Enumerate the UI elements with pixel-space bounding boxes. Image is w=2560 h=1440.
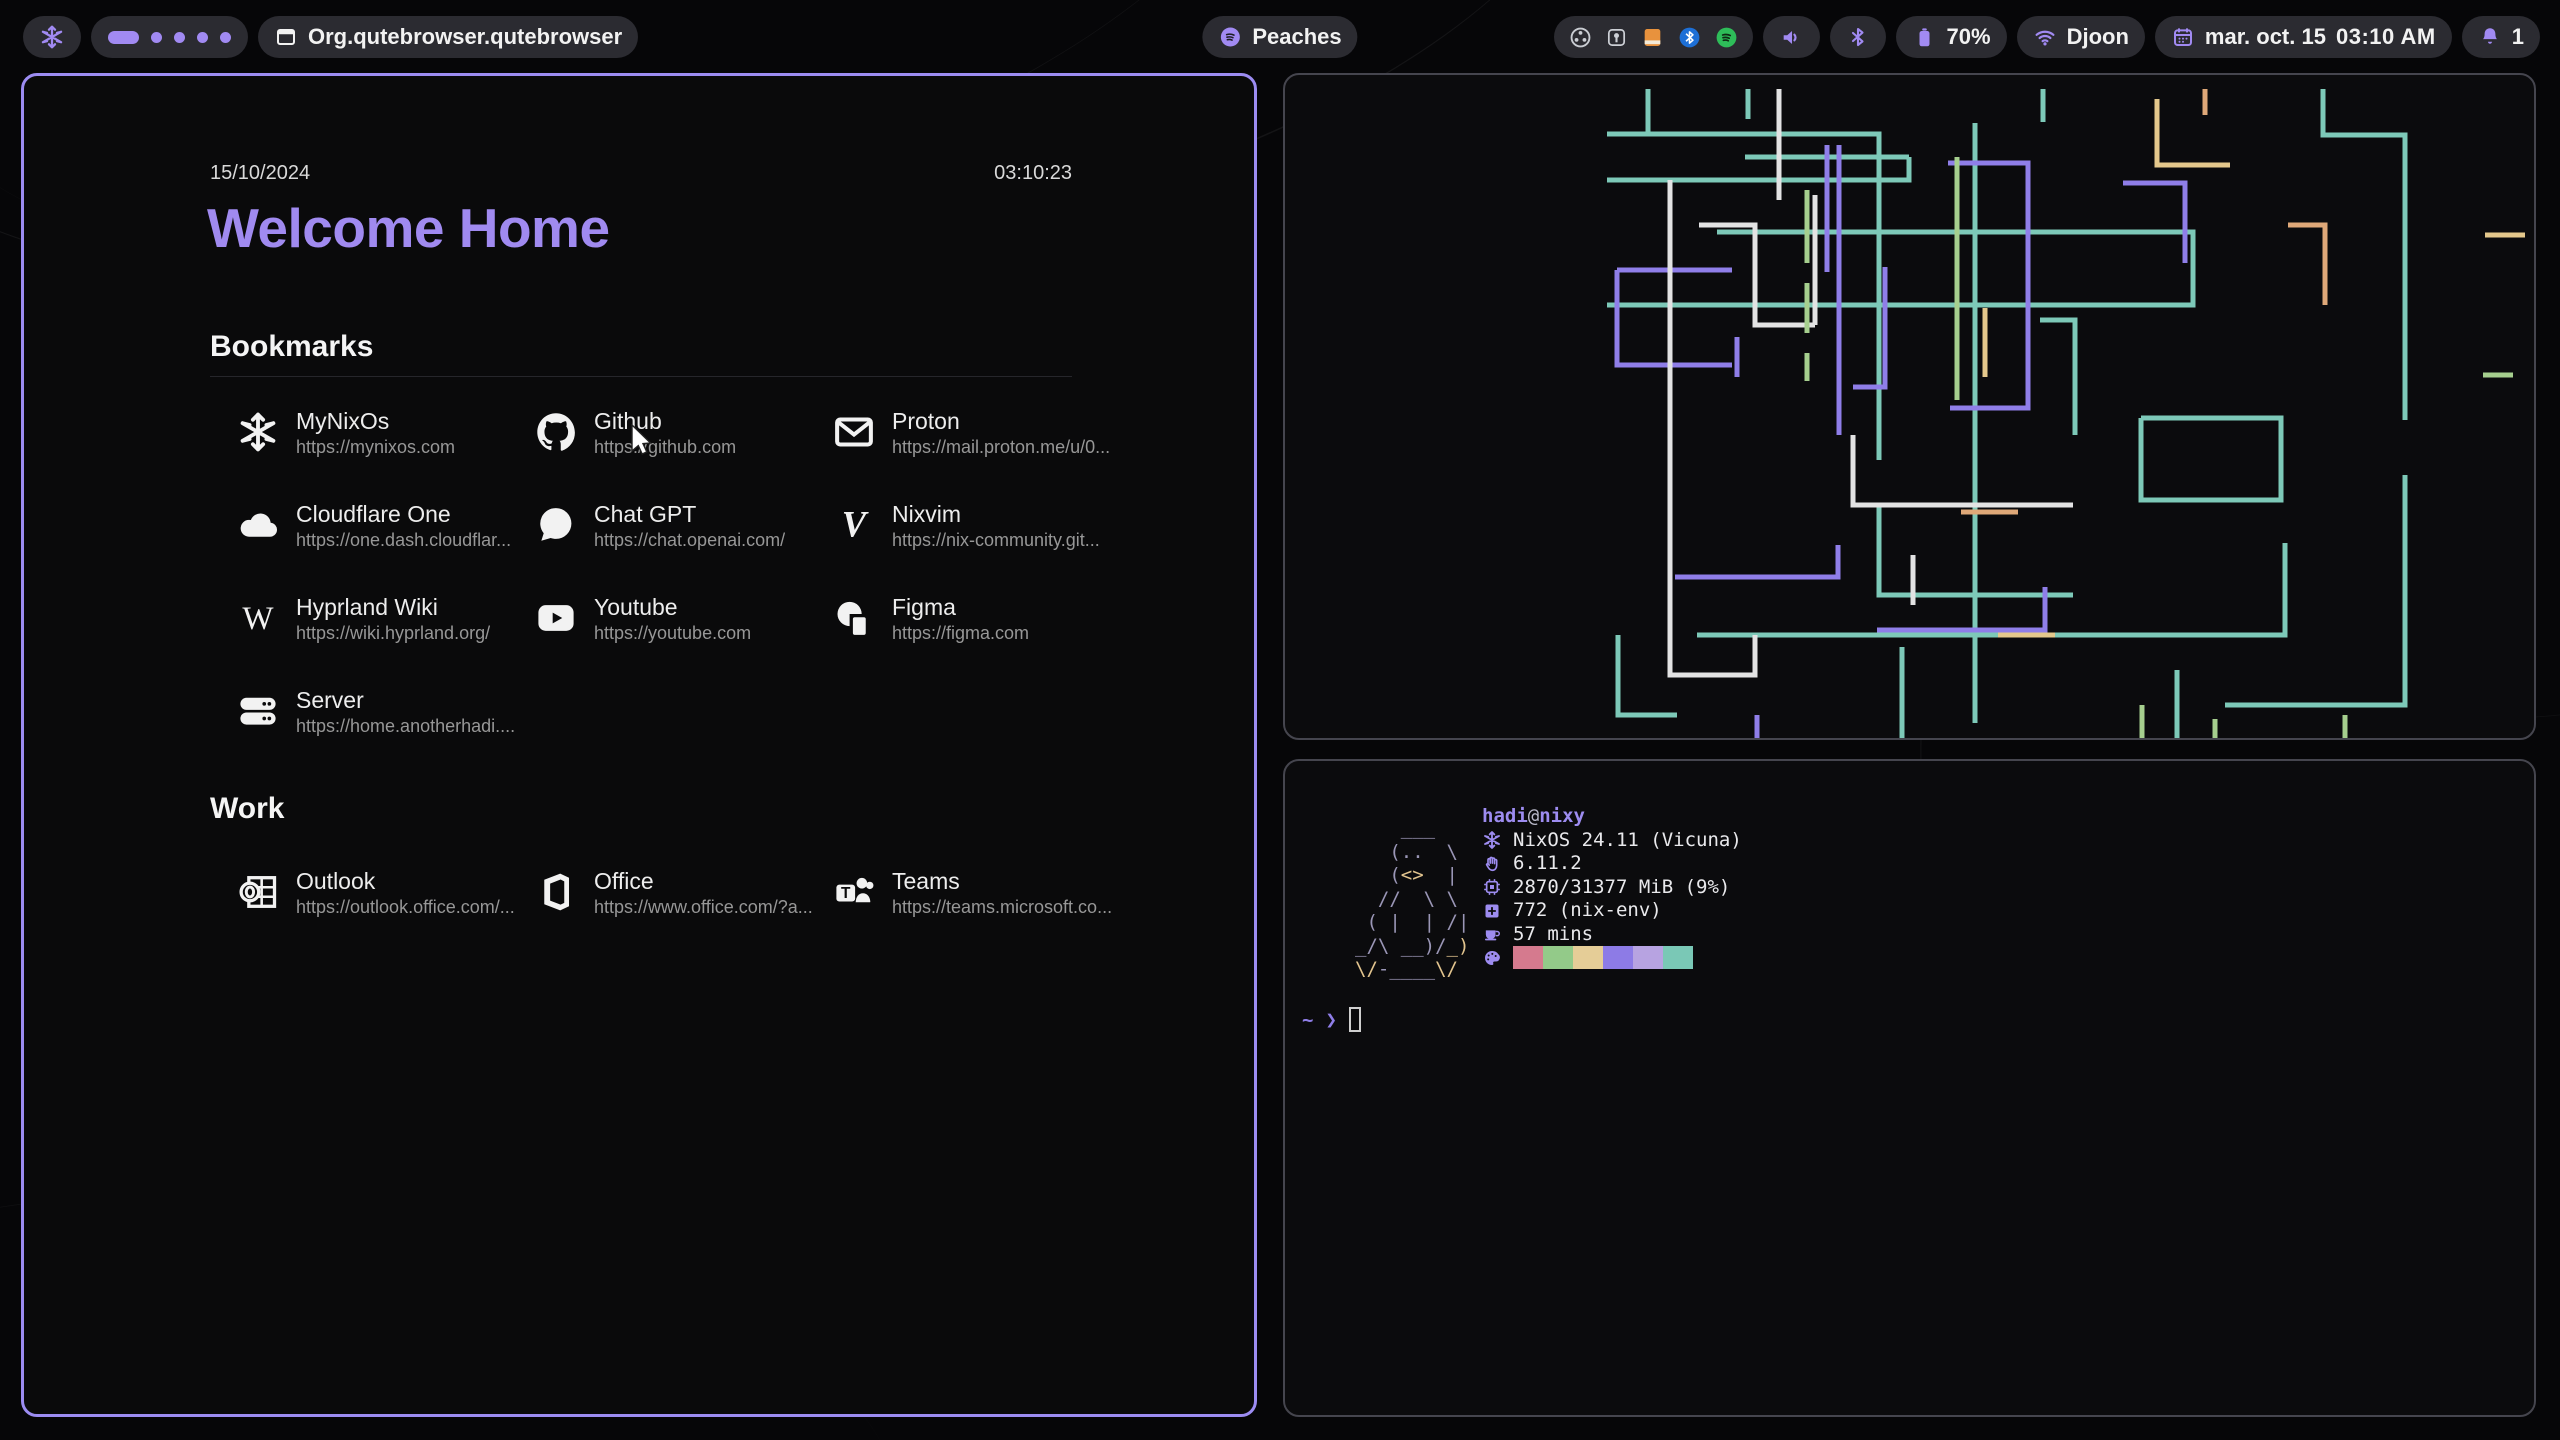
bell-icon xyxy=(2478,25,2502,49)
svg-text:T: T xyxy=(841,885,851,902)
packages-icon xyxy=(1482,901,1502,921)
bookmark-item-nixvim[interactable]: VNixvimhttps://nix-community.git... xyxy=(832,495,1130,555)
bookmark-item-github[interactable]: Githubhttps://github.com xyxy=(534,402,832,462)
startpage-date-row: 15/10/2024 03:10:23 xyxy=(210,162,1072,185)
bookmark-title: Cloudflare One xyxy=(296,500,511,528)
clock-widget[interactable]: mar. oct. 15 03:10 AM xyxy=(2155,16,2452,58)
bookmark-item-teams[interactable]: TTeamshttps://teams.microsoft.co... xyxy=(832,862,1130,922)
bookmarks-grid: MyNixOshttps://mynixos.comGithubhttps://… xyxy=(236,402,1130,741)
active-window-title[interactable]: Org.qutebrowser.qutebrowser xyxy=(258,16,638,58)
uptime-icon xyxy=(1482,924,1502,944)
shell-prompt[interactable]: ~ ❯ xyxy=(1302,1007,1361,1032)
fastfetch-at: @ xyxy=(1528,805,1539,829)
bluetooth-widget[interactable] xyxy=(1830,16,1886,58)
speaker-icon xyxy=(1779,25,1804,50)
server-icon xyxy=(236,689,280,733)
bookmark-title: Nixvim xyxy=(892,500,1100,528)
media-player-widget[interactable]: Peaches xyxy=(1202,16,1357,58)
svg-text:V: V xyxy=(842,504,869,545)
bookmark-item-server[interactable]: Serverhttps://home.anotherhadi.... xyxy=(236,681,534,741)
notification-count: 1 xyxy=(2512,24,2524,50)
fastfetch-row-uptime: 57 mins xyxy=(1482,923,1742,947)
terminal-color-palette xyxy=(1513,946,1693,969)
fastfetch-rows: NixOS 24.11 (Vicuna)6.11.22870/31377 MiB… xyxy=(1482,829,1742,970)
fastfetch-row-colors xyxy=(1482,946,1742,970)
spotify-tray-icon[interactable] xyxy=(1714,25,1739,50)
bookmark-title: Office xyxy=(594,867,813,895)
github-icon xyxy=(534,410,578,454)
bookmark-url: https://figma.com xyxy=(892,622,1029,644)
cloud-icon xyxy=(236,503,280,547)
window-icon xyxy=(274,25,298,49)
bookmark-item-chat-gpt[interactable]: Chat GPThttps://chat.openai.com/ xyxy=(534,495,832,555)
workspace-4[interactable] xyxy=(197,32,208,43)
network-ssid: Djoon xyxy=(2067,24,2129,50)
figma-icon xyxy=(832,596,876,640)
fastfetch-row-memory: 2870/31377 MiB (9%) xyxy=(1482,876,1742,900)
fastfetch-info: hadi@nixy NixOS 24.11 (Vicuna)6.11.22870… xyxy=(1482,805,1742,970)
bookmark-item-outlook[interactable]: Outlookhttps://outlook.office.com/... xyxy=(236,862,534,922)
keepass-icon[interactable] xyxy=(1605,26,1628,49)
notebook-icon[interactable] xyxy=(1640,25,1665,50)
nix-icon xyxy=(236,410,280,454)
bookmark-item-youtube[interactable]: Youtubehttps://youtube.com xyxy=(534,588,832,648)
pipes-art xyxy=(1285,75,2534,738)
bookmark-url: https://wiki.hyprland.org/ xyxy=(296,622,490,644)
qutebrowser-window[interactable]: 15/10/2024 03:10:23 Welcome Home Bookmar… xyxy=(21,73,1257,1417)
launcher-button[interactable] xyxy=(23,16,81,58)
prompt-symbol: ❯ xyxy=(1325,1009,1336,1031)
bookmark-item-office[interactable]: Officehttps://www.office.com/?a... xyxy=(534,862,832,922)
workspace-1-active[interactable] xyxy=(108,31,139,44)
svg-text:W: W xyxy=(242,601,274,637)
teams-icon: T xyxy=(832,870,876,914)
page-title: Welcome Home xyxy=(207,196,610,260)
fastfetch-title: hadi@nixy xyxy=(1482,805,1742,829)
bookmark-title: Proton xyxy=(892,407,1110,435)
status-bar: Org.qutebrowser.qutebrowser Peaches 70% xyxy=(0,0,2560,74)
terminal-cursor xyxy=(1349,1007,1361,1032)
obs-icon[interactable] xyxy=(1568,25,1593,50)
desktop: { "topbar": { "launcher_icon": "nix-snow… xyxy=(0,0,2560,1440)
bookmark-url: https://youtube.com xyxy=(594,622,751,644)
divider xyxy=(210,376,1072,377)
system-tray[interactable] xyxy=(1554,16,1753,58)
date-label: mar. oct. 15 xyxy=(2205,24,2326,50)
startpage-time: 03:10:23 xyxy=(994,162,1072,185)
time-label: 03:10 AM xyxy=(2336,24,2436,50)
calendar-icon xyxy=(2171,25,2195,49)
workspace-3[interactable] xyxy=(174,32,185,43)
bookmark-title: Outlook xyxy=(296,867,515,895)
fastfetch-row-os: NixOS 24.11 (Vicuna) xyxy=(1482,829,1742,853)
proton-icon xyxy=(832,410,876,454)
bookmark-title: Figma xyxy=(892,593,1029,621)
bluetooth-tray-icon[interactable] xyxy=(1677,25,1702,50)
wikipedia-icon: W xyxy=(236,596,280,640)
bookmark-item-mynixos[interactable]: MyNixOshttps://mynixos.com xyxy=(236,402,534,462)
fastfetch-user: hadi xyxy=(1482,805,1528,829)
bookmark-url: https://outlook.office.com/... xyxy=(296,896,515,918)
bluetooth-icon xyxy=(1846,25,1870,49)
bookmark-url: https://mail.proton.me/u/0... xyxy=(892,436,1110,458)
media-track-label: Peaches xyxy=(1252,24,1341,50)
bookmark-url: https://teams.microsoft.co... xyxy=(892,896,1112,918)
bookmark-item-cloudflare-one[interactable]: Cloudflare Onehttps://one.dash.cloudflar… xyxy=(236,495,534,555)
bookmark-item-figma[interactable]: Figmahttps://figma.com xyxy=(832,588,1130,648)
bookmark-title: Hyprland Wiki xyxy=(296,593,490,621)
fastfetch-host: nixy xyxy=(1539,805,1585,829)
os-icon xyxy=(1482,830,1502,850)
startpage-date: 15/10/2024 xyxy=(210,162,310,185)
bookmark-title: Youtube xyxy=(594,593,751,621)
pipes-terminal-window[interactable] xyxy=(1283,73,2536,740)
nixvim-icon: V xyxy=(832,503,876,547)
network-widget[interactable]: Djoon xyxy=(2017,16,2145,58)
memory-icon xyxy=(1482,877,1502,897)
battery-widget[interactable]: 70% xyxy=(1896,16,2007,58)
bookmark-item-proton[interactable]: Protonhttps://mail.proton.me/u/0... xyxy=(832,402,1130,462)
nix-snowflake-icon xyxy=(39,24,65,50)
fastfetch-terminal-window[interactable]: ___ (.. \ (<> | // \ \ ( | | /|_/\ __)/_… xyxy=(1283,759,2536,1417)
colors-icon xyxy=(1482,948,1502,968)
bookmark-url: https://home.anotherhadi.... xyxy=(296,715,515,737)
youtube-icon xyxy=(534,596,578,640)
fastfetch-row-kernel: 6.11.2 xyxy=(1482,852,1742,876)
bookmark-url: https://www.office.com/?a... xyxy=(594,896,813,918)
workspaces[interactable] xyxy=(91,16,248,58)
ascii-art: ___ (.. \ (<> | // \ \ ( | | /|_/\ __)/_… xyxy=(1355,817,1469,982)
bookmark-url: https://github.com xyxy=(594,436,736,458)
kernel-icon xyxy=(1482,854,1502,874)
bookmark-url: https://mynixos.com xyxy=(296,436,455,458)
workspace-2[interactable] xyxy=(151,32,162,43)
volume-widget[interactable] xyxy=(1763,16,1820,58)
bookmark-title: Teams xyxy=(892,867,1112,895)
notifications-widget[interactable]: 1 xyxy=(2462,16,2540,58)
work-grid: Outlookhttps://outlook.office.com/...Off… xyxy=(236,862,1130,922)
bookmark-url: https://nix-community.git... xyxy=(892,529,1100,551)
battery-percent: 70% xyxy=(1947,24,1991,50)
bookmark-title: MyNixOs xyxy=(296,407,455,435)
bookmark-url: https://chat.openai.com/ xyxy=(594,529,785,551)
bookmark-title: Github xyxy=(594,407,736,435)
chat-icon xyxy=(534,503,578,547)
window-title-label: Org.qutebrowser.qutebrowser xyxy=(308,24,622,50)
bookmark-title: Server xyxy=(296,686,515,714)
workspace-5[interactable] xyxy=(220,32,231,43)
bookmark-item-hyprland-wiki[interactable]: WHyprland Wikihttps://wiki.hyprland.org/ xyxy=(236,588,534,648)
bookmarks-heading: Bookmarks xyxy=(210,330,373,364)
battery-icon xyxy=(1912,25,1937,50)
work-heading: Work xyxy=(210,792,284,826)
office-icon xyxy=(534,870,578,914)
wifi-icon xyxy=(2033,25,2057,49)
outlook-icon xyxy=(236,870,280,914)
prompt-cwd: ~ xyxy=(1302,1009,1313,1031)
bookmark-url: https://one.dash.cloudflar... xyxy=(296,529,511,551)
bookmark-title: Chat GPT xyxy=(594,500,785,528)
fastfetch-row-packages: 772 (nix-env) xyxy=(1482,899,1742,923)
spotify-icon xyxy=(1218,25,1242,49)
